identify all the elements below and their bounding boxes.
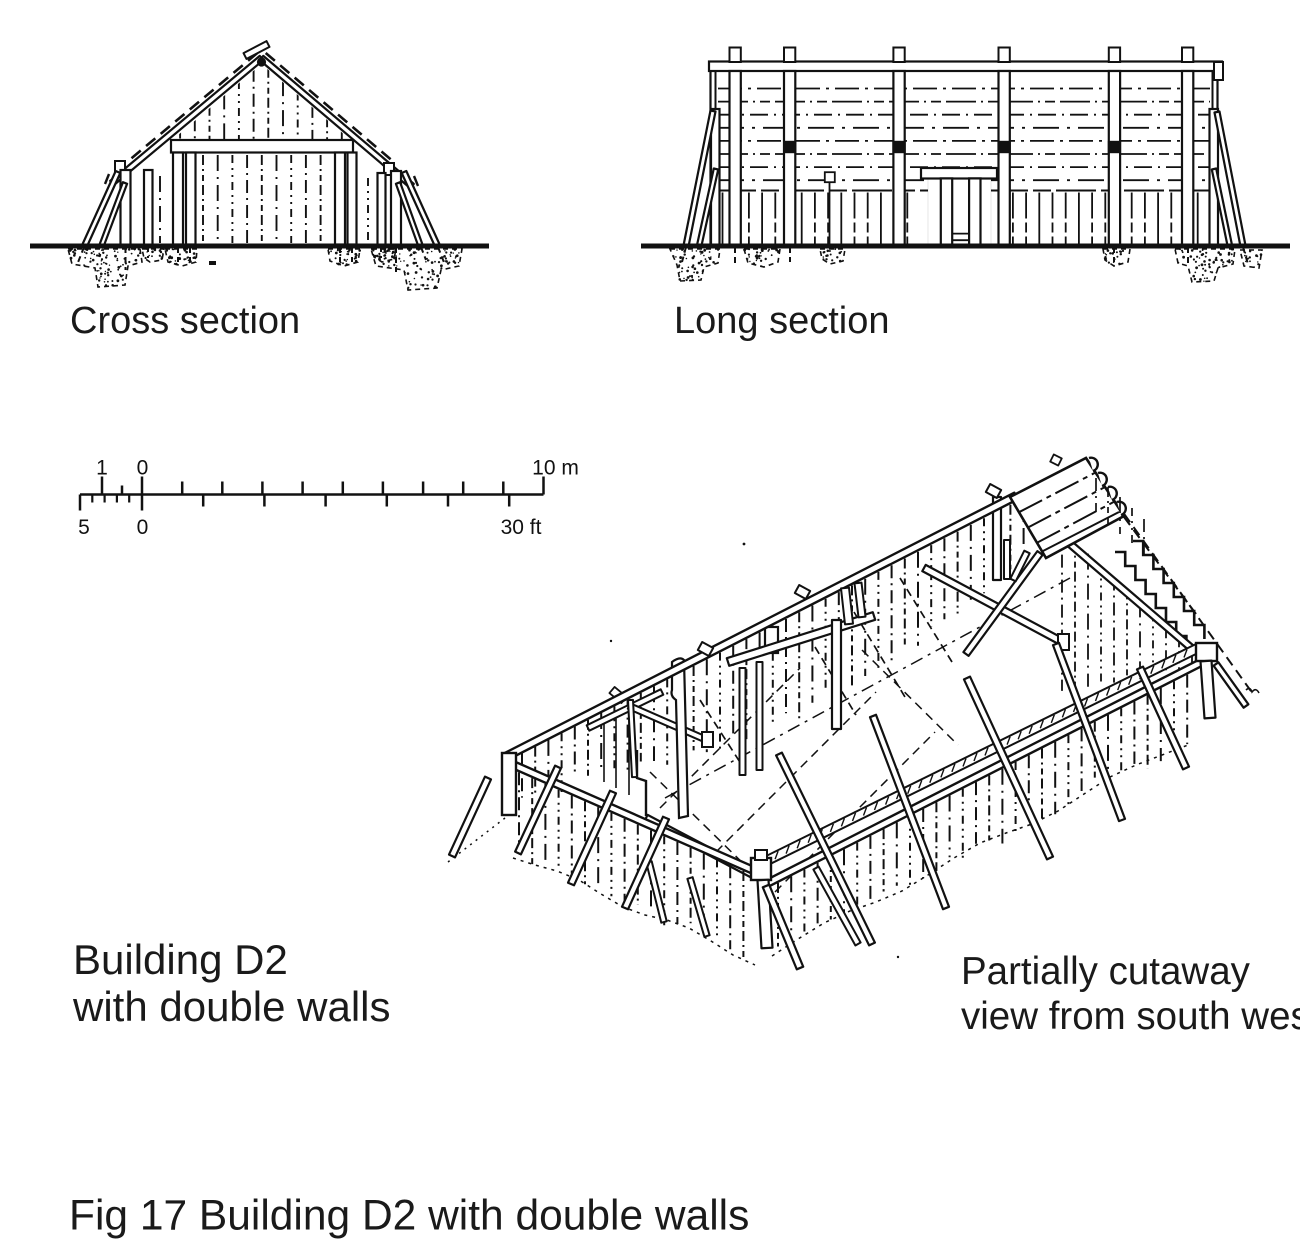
svg-text:with double walls: with double walls [72, 983, 391, 1030]
svg-text:Building D2: Building D2 [73, 936, 288, 983]
svg-text:30 ft: 30 ft [501, 516, 542, 539]
svg-text:5: 5 [78, 516, 90, 539]
svg-text:1: 1 [96, 457, 108, 480]
svg-text:Partially cutaway: Partially cutaway [961, 950, 1251, 993]
svg-text:Fig 17 Building D2 with double: Fig 17 Building D2 with double walls [69, 1193, 749, 1239]
svg-text:Long section: Long section [674, 300, 890, 342]
svg-text:10 m: 10 m [532, 457, 579, 480]
svg-text:0: 0 [137, 457, 149, 480]
svg-text:Cross section: Cross section [70, 300, 300, 342]
svg-text:0: 0 [137, 516, 149, 539]
svg-text:view from south west: view from south west [961, 995, 1300, 1038]
